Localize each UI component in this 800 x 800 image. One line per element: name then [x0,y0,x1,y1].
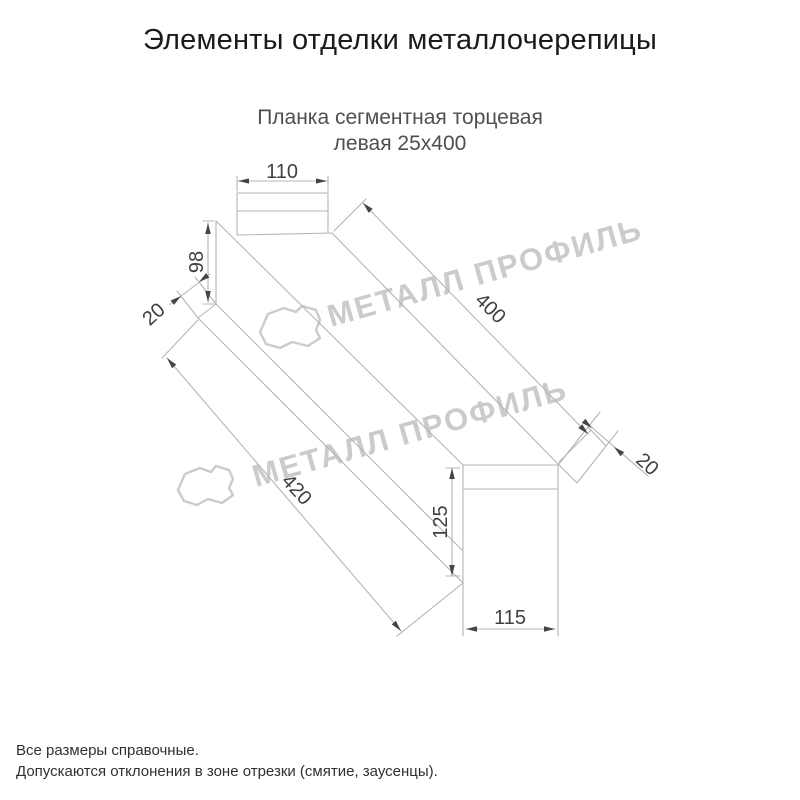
dim-98-label: 98 [186,251,208,273]
arrowhead [238,178,249,183]
end-flap-outline [558,427,606,483]
strip-edge [216,221,463,465]
arrowhead [544,626,555,632]
dim-20tl-ext [177,277,216,318]
arrowhead [449,468,455,479]
footer-note-line1: Все размеры справочные. [16,740,438,761]
cloud-logo-icon [178,466,233,505]
dim-115-label: 115 [494,607,526,629]
dim-400-label: 400 [471,289,510,328]
dim-20br-ext [588,412,618,446]
arrowhead [316,178,327,183]
footer-note-line2: Допускаются отклонения в зоне отрезки (с… [16,761,438,782]
dim-125-label: 125 [430,505,452,538]
strip-edge [198,318,463,583]
dim-110-label: 110 [266,161,298,183]
technical-drawing: МЕТАЛЛ ПРОФИЛЬ МЕТАЛЛ ПРОФИЛЬ [0,0,800,800]
arrowhead [171,296,181,305]
cloud-logo-icon [260,306,320,348]
dim-20tl-label: 20 [138,299,169,330]
dim-420-line [167,358,401,631]
top-flange-outline [237,193,332,235]
arrowhead [614,447,624,456]
dim-20br-label: 20 [631,449,662,480]
left-end-fold-edge [198,304,216,318]
arrowhead [466,626,477,632]
footer-notes: Все размеры справочные. Допускаются откл… [16,740,438,782]
watermark-texts: МЕТАЛЛ ПРОФИЛЬ МЕТАЛЛ ПРОФИЛЬ [248,211,646,493]
arrowhead [205,223,211,234]
